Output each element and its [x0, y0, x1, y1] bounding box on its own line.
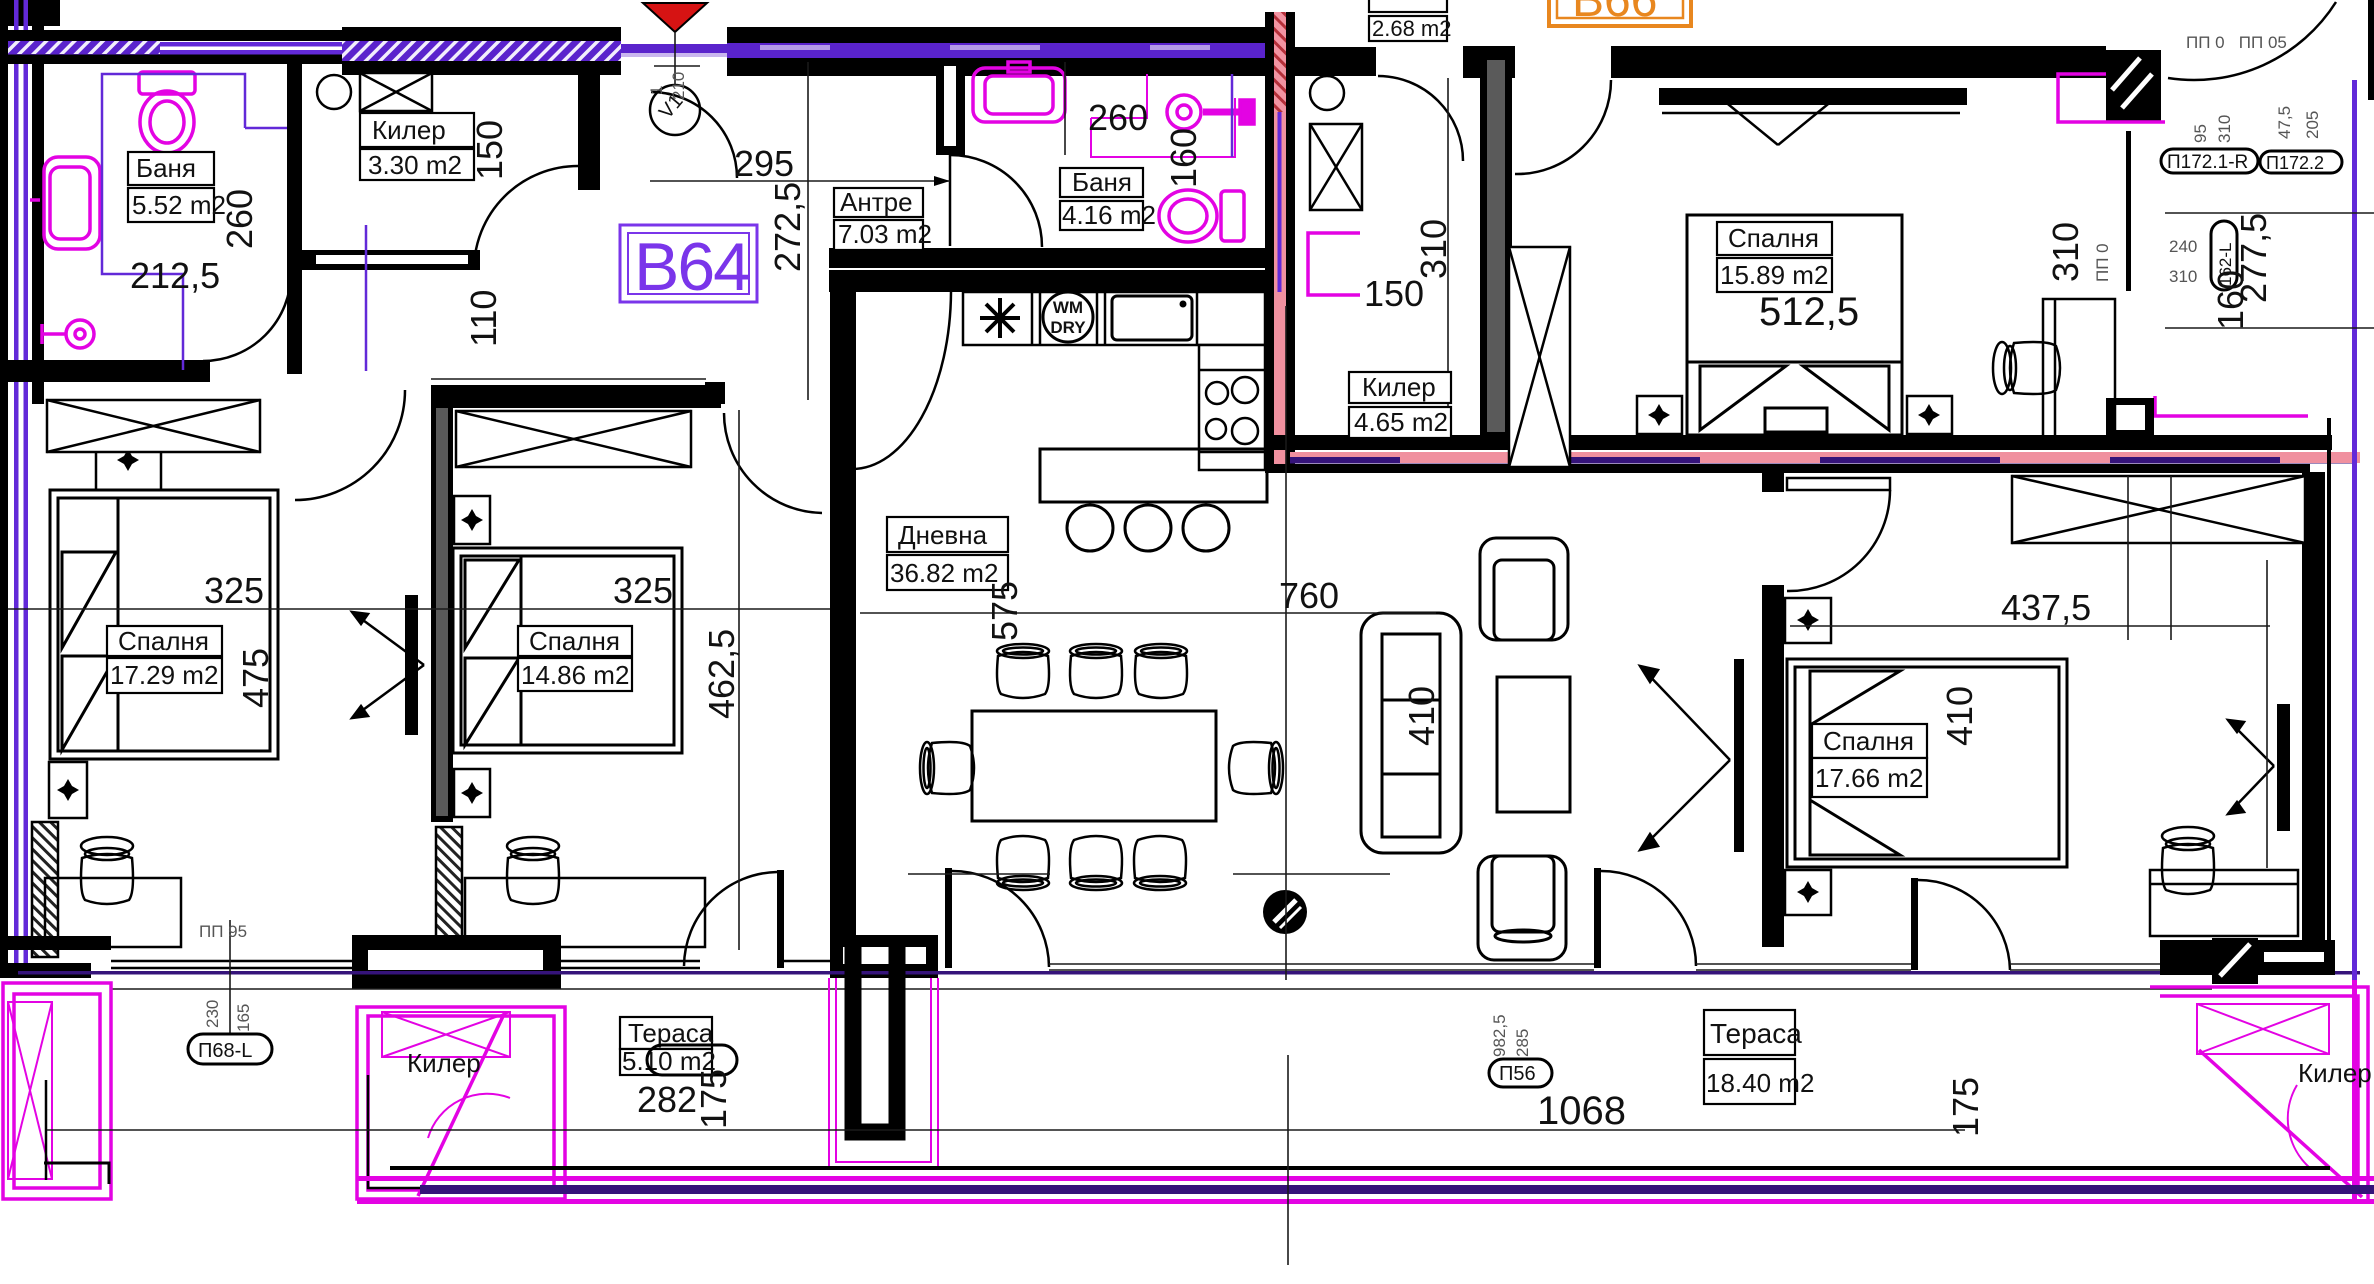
svg-text:47,5: 47,5	[2275, 106, 2294, 139]
svg-text:18.40 m2: 18.40 m2	[1706, 1068, 1814, 1098]
svg-text:982,5: 982,5	[1490, 1014, 1509, 1057]
svg-text:230: 230	[203, 1000, 222, 1028]
svg-text:П68-L: П68-L	[198, 1040, 252, 1062]
svg-text:175: 175	[693, 1069, 734, 1129]
svg-text:240: 240	[2169, 237, 2197, 256]
svg-text:282: 282	[637, 1079, 697, 1120]
svg-text:Спалня: Спалня	[529, 626, 620, 656]
svg-text:Спалня: Спалня	[1728, 223, 1819, 253]
svg-text:Баня: Баня	[136, 153, 196, 183]
svg-text:175: 175	[1945, 1077, 1986, 1137]
svg-text:Килер: Килер	[2298, 1058, 2372, 1088]
svg-text:310: 310	[1413, 219, 1454, 279]
svg-text:260: 260	[219, 189, 260, 249]
svg-text:310: 310	[2045, 222, 2086, 282]
svg-text:14.86 m2: 14.86 m2	[521, 660, 629, 690]
svg-text:437,5: 437,5	[2001, 587, 2091, 628]
svg-text:ПП 95: ПП 95	[199, 922, 247, 941]
svg-text:Килер: Килер	[372, 115, 446, 145]
svg-text:575: 575	[984, 581, 1025, 641]
svg-text:Антре: Антре	[840, 187, 913, 217]
svg-text:310: 310	[2215, 115, 2234, 143]
svg-text:DRY: DRY	[1050, 318, 1086, 337]
svg-text:П172.1-R: П172.1-R	[2167, 152, 2248, 173]
svg-text:1: 1	[647, 86, 666, 95]
svg-text:210: 210	[669, 72, 688, 100]
svg-text:36.82 m2: 36.82 m2	[890, 558, 998, 588]
svg-text:B64: B64	[634, 229, 749, 305]
svg-text:Тераса: Тераса	[1710, 1018, 1802, 1049]
svg-text:17.29 m2: 17.29 m2	[110, 660, 218, 690]
svg-text:Спалня: Спалня	[118, 626, 209, 656]
svg-text:2.68 m2: 2.68 m2	[1372, 16, 1452, 41]
svg-text:7.03 m2: 7.03 m2	[838, 219, 932, 249]
svg-text:Килер: Килер	[1362, 372, 1436, 402]
svg-text:ПП 0 ПП 05: ПП 0 ПП 05	[2186, 33, 2287, 52]
svg-text:Килер: Килер	[407, 1048, 481, 1078]
svg-text:Баня: Баня	[1072, 167, 1132, 197]
svg-text:П56: П56	[1499, 1063, 1536, 1085]
svg-text:475: 475	[235, 648, 276, 708]
svg-text:310: 310	[2169, 267, 2197, 286]
svg-text:Дневна: Дневна	[898, 520, 988, 550]
svg-text:410: 410	[1939, 686, 1980, 746]
svg-text:212,5: 212,5	[130, 255, 220, 296]
svg-text:5.52 m2: 5.52 m2	[132, 190, 226, 220]
svg-text:110: 110	[463, 290, 504, 347]
svg-text:462,5: 462,5	[701, 629, 742, 719]
svg-text:4.65 m2: 4.65 m2	[1354, 407, 1448, 437]
svg-text:295: 295	[734, 143, 794, 184]
svg-text:В66: В66	[1572, 0, 1657, 27]
svg-text:ПП 0: ПП 0	[2093, 243, 2112, 282]
svg-text:512,5: 512,5	[1759, 290, 1859, 334]
svg-text:325: 325	[613, 570, 673, 611]
svg-text:160: 160	[1163, 128, 1204, 188]
svg-text:760: 760	[1279, 575, 1339, 616]
svg-text:150: 150	[469, 120, 510, 180]
svg-text:205: 205	[2303, 111, 2322, 139]
svg-text:15.89 m2: 15.89 m2	[1720, 260, 1828, 290]
svg-text:285: 285	[1513, 1029, 1532, 1057]
svg-text:95: 95	[2191, 124, 2210, 143]
svg-text:3.30 m2: 3.30 m2	[368, 150, 462, 180]
svg-text:WM: WM	[1053, 298, 1083, 317]
svg-text:1068: 1068	[1537, 1089, 1626, 1133]
svg-text:325: 325	[204, 570, 264, 611]
svg-text:П172.2: П172.2	[2266, 153, 2324, 173]
svg-text:160: 160	[2210, 270, 2251, 330]
svg-text:260: 260	[1088, 97, 1148, 138]
svg-text:272,5: 272,5	[767, 182, 808, 272]
svg-text:165: 165	[234, 1004, 253, 1032]
svg-text:4.16 m2: 4.16 m2	[1062, 200, 1156, 230]
svg-text:410: 410	[1401, 686, 1442, 746]
svg-text:Спалня: Спалня	[1823, 726, 1914, 756]
svg-text:17.66 m2: 17.66 m2	[1815, 763, 1923, 793]
